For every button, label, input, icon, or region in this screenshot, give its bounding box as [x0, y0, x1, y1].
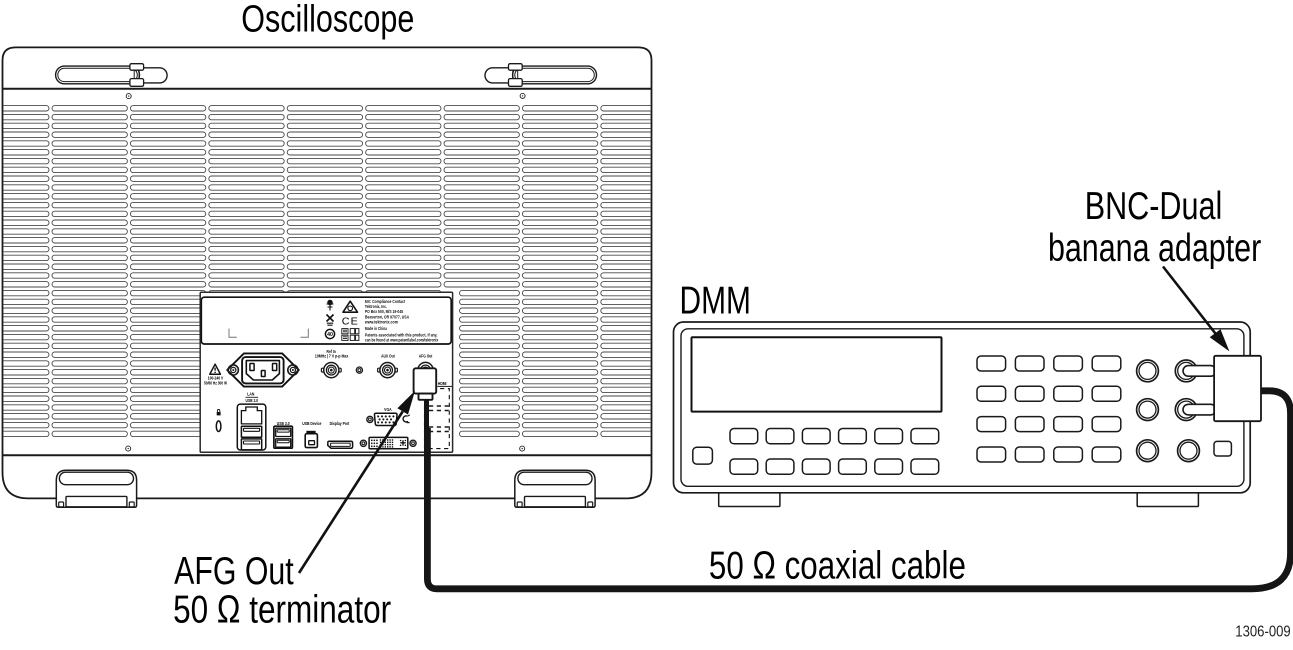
svg-text:DMM: DMM [680, 279, 751, 322]
svg-text:LAN: LAN [247, 391, 254, 396]
svg-text:banana adapter: banana adapter [1048, 227, 1261, 270]
svg-text:AFG Out: AFG Out [419, 353, 433, 358]
svg-text:50 Ω coaxial cable: 50 Ω coaxial cable [709, 544, 966, 587]
svg-text:VGA: VGA [384, 407, 392, 412]
svg-text:can be found at www.patentlabe: can be found at www.patentlabel.com/tekt… [365, 338, 439, 343]
svg-text:10MHz | 7 V p-p Max: 10MHz | 7 V p-p Max [315, 353, 349, 358]
svg-text:Oscilloscope: Oscilloscope [241, 0, 414, 41]
svg-text:USB 2.0: USB 2.0 [245, 398, 258, 403]
svg-text:CE: CE [342, 316, 359, 328]
svg-text:50 Ω terminator: 50 Ω terminator [173, 589, 391, 632]
svg-text:www.tektronix.com: www.tektronix.com [364, 319, 398, 324]
svg-text:AFG Out: AFG Out [174, 550, 294, 593]
svg-text:1306-009: 1306-009 [1235, 623, 1290, 640]
svg-text:USB Device: USB Device [302, 421, 321, 426]
svg-text:Made in China: Made in China [365, 326, 387, 331]
svg-text:50/60 Hz 300 W: 50/60 Hz 300 W [204, 380, 228, 385]
svg-text:BNC-Dual: BNC-Dual [1085, 185, 1223, 228]
svg-text:Display Port: Display Port [330, 421, 350, 426]
svg-text:HDMI: HDMI [438, 381, 447, 386]
svg-text:40: 40 [327, 332, 333, 338]
svg-text:AUX Out: AUX Out [381, 353, 395, 358]
